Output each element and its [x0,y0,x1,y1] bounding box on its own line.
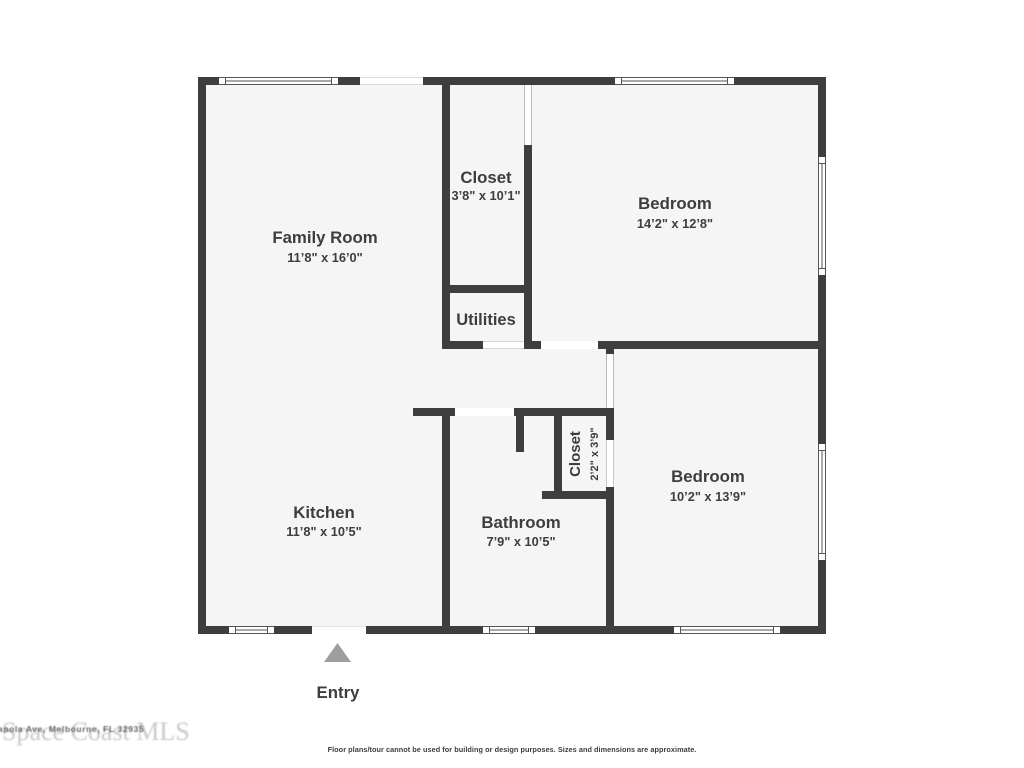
svg-text:Closet: Closet [567,431,584,477]
svg-text:apola Ave, Melbourne, FL 32935: apola Ave, Melbourne, FL 32935 [0,724,144,734]
svg-text:Closet: Closet [460,168,512,187]
svg-text:11’8" x 10’5": 11’8" x 10’5" [286,524,361,539]
svg-text:10’2" x 13’9": 10’2" x 13’9" [670,489,746,504]
svg-text:Bedroom: Bedroom [638,194,712,213]
svg-text:Bedroom: Bedroom [671,467,745,486]
svg-text:Utilities: Utilities [456,311,516,329]
svg-text:7’9" x 10’5": 7’9" x 10’5" [486,534,555,549]
svg-text:2’2" x 3’9": 2’2" x 3’9" [589,427,601,480]
svg-text:Floor plans/tour cannot be use: Floor plans/tour cannot be used for buil… [328,745,697,754]
svg-text:3’8" x 10’1": 3’8" x 10’1" [451,188,520,203]
svg-text:Entry: Entry [317,683,361,702]
svg-text:Family Room: Family Room [272,228,377,247]
svg-text:14’2" x 12’8": 14’2" x 12’8" [637,216,713,231]
svg-text:Kitchen: Kitchen [293,503,355,522]
svg-text:11’8" x 16’0": 11’8" x 16’0" [287,250,362,265]
svg-text:Bathroom: Bathroom [481,513,560,532]
